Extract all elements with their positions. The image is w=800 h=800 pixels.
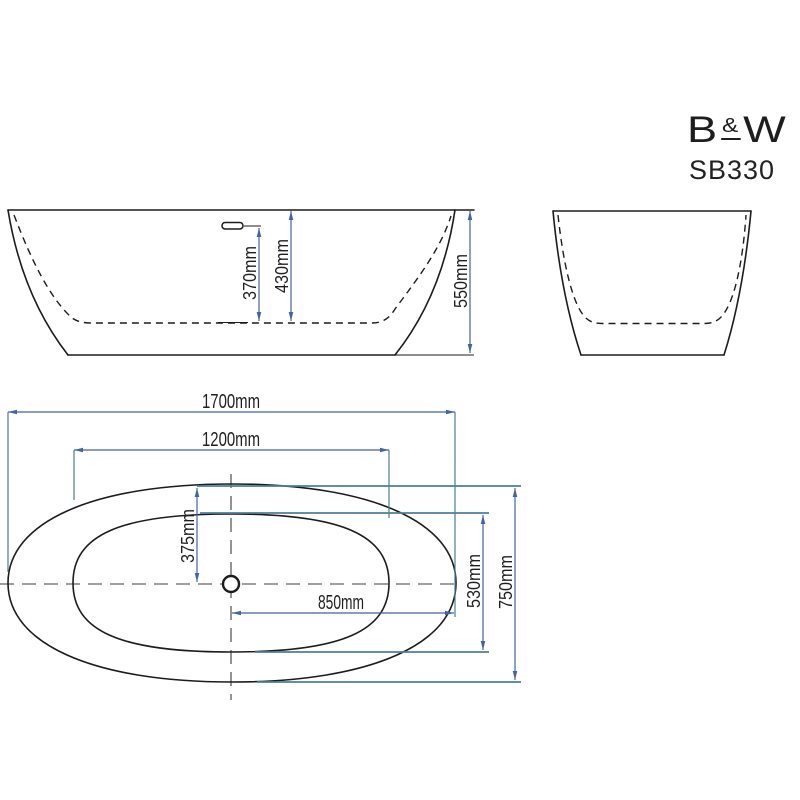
dim-overflow-height-370: 370mm xyxy=(240,228,260,321)
dim-label-550: 550mm xyxy=(451,254,471,308)
dim-label-1700: 1700mm xyxy=(202,391,260,413)
side-elevation-view xyxy=(553,211,751,355)
drain-hole xyxy=(223,576,239,592)
dim-overall-width-750: 750mm xyxy=(496,488,516,680)
dim-label-530: 530mm xyxy=(464,554,484,608)
dim-label-850: 850mm xyxy=(318,592,364,614)
dim-center-to-end-850: 850mm xyxy=(232,592,454,614)
dim-label-375: 375mm xyxy=(178,509,198,563)
dim-inner-width-530: 530mm xyxy=(464,515,484,650)
front-left-edge xyxy=(8,210,68,355)
dim-inner-depth-430: 430mm xyxy=(272,211,292,321)
side-right-edge xyxy=(724,211,751,355)
dim-label-370: 370mm xyxy=(240,246,260,300)
dim-total-height-550: 550mm xyxy=(451,211,471,353)
technical-drawing: 370mm 430mm 550mm xyxy=(0,0,800,800)
dim-center-to-side-375: 375mm xyxy=(178,488,198,582)
dim-label-750: 750mm xyxy=(496,555,516,609)
front-right-edge xyxy=(395,210,455,355)
side-left-edge xyxy=(553,211,581,355)
front-elevation-view: 370mm 430mm 550mm xyxy=(8,210,474,355)
overflow-slot xyxy=(222,223,243,230)
side-inner-profile-dashed xyxy=(558,215,746,324)
front-inner-profile-dashed xyxy=(14,215,451,323)
dim-label-430: 430mm xyxy=(272,239,292,293)
dim-inner-length-1200: 1200mm xyxy=(74,429,389,451)
dim-label-1200: 1200mm xyxy=(202,429,260,451)
plan-view: 1700mm 1200mm 850mm 375mm 530mm xyxy=(0,391,521,700)
drawing-canvas: B&W SB330 370 xyxy=(0,0,800,800)
dim-overall-length-1700: 1700mm xyxy=(8,391,455,413)
